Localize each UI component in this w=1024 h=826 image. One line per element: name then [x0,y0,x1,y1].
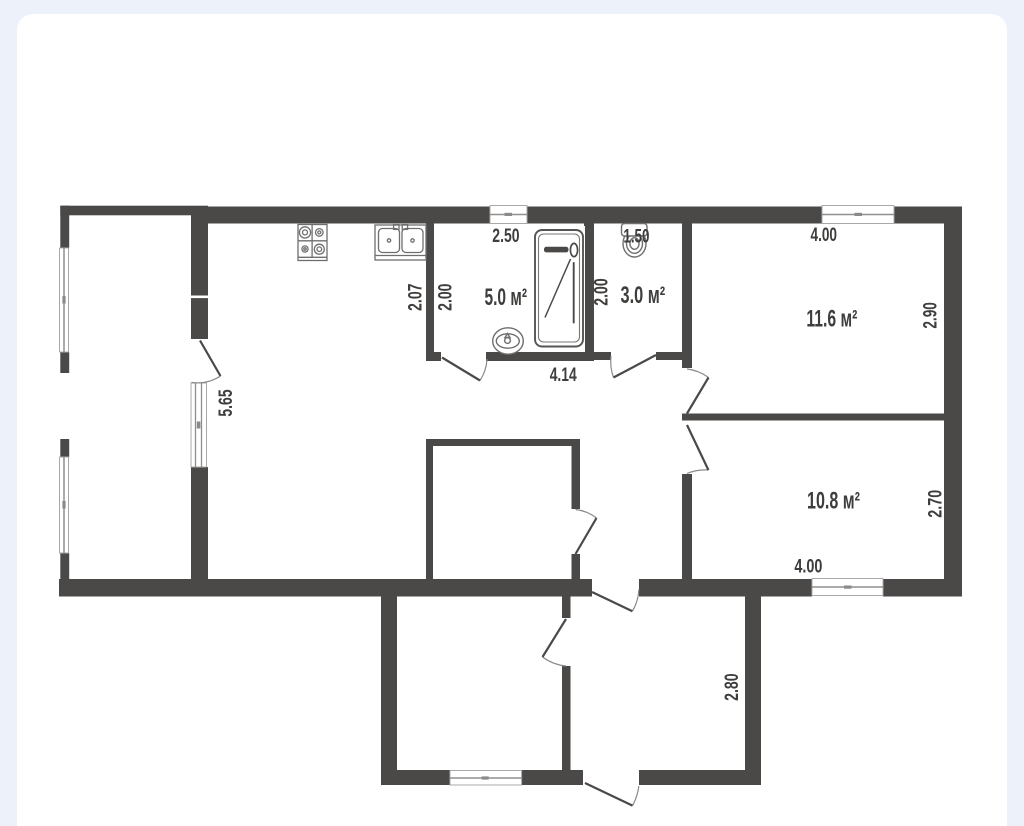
svg-text:2.07: 2.07 [406,283,427,311]
svg-text:4.00: 4.00 [794,557,822,578]
svg-text:5.0 м²: 5.0 м² [485,284,528,311]
svg-text:2.00: 2.00 [436,284,457,311]
svg-text:2.80: 2.80 [722,673,743,701]
svg-text:3.0 м²: 3.0 м² [621,282,666,309]
svg-text:2.70: 2.70 [925,490,946,518]
svg-text:2.00: 2.00 [592,278,613,305]
svg-text:2.90: 2.90 [921,302,942,329]
svg-text:4.00: 4.00 [811,225,838,246]
svg-text:2.50: 2.50 [492,226,519,247]
svg-text:11.6 м²: 11.6 м² [806,306,857,333]
svg-text:5.65: 5.65 [216,389,237,416]
svg-text:10.8 м²: 10.8 м² [807,487,860,514]
svg-text:1.50: 1.50 [623,226,649,247]
svg-text:4.14: 4.14 [550,365,577,386]
